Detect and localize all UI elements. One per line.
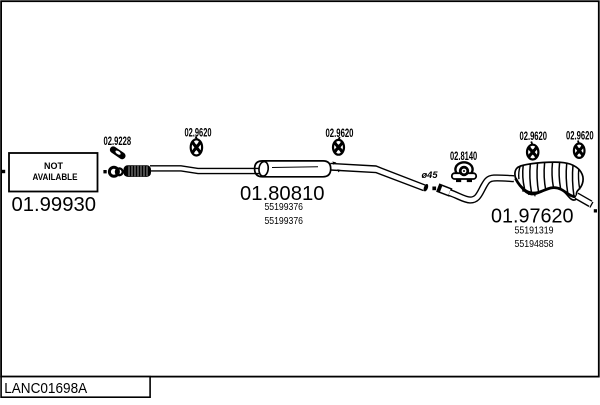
svg-text:01.97620: 01.97620	[491, 206, 574, 228]
svg-text:02.9620: 02.9620	[185, 128, 212, 140]
svg-text:ø45: ø45	[422, 170, 439, 181]
svg-text:55194858: 55194858	[515, 239, 554, 250]
svg-text:02.9620: 02.9620	[520, 131, 548, 143]
svg-text:LANC01698A: LANC01698A	[4, 381, 87, 397]
svg-text:NOT: NOT	[44, 161, 63, 172]
svg-text:55199376: 55199376	[265, 216, 304, 227]
svg-text:55191319: 55191319	[515, 226, 554, 237]
svg-text:02.9620: 02.9620	[566, 131, 594, 143]
svg-text:01.99930: 01.99930	[12, 194, 97, 216]
svg-text:55199376: 55199376	[265, 202, 304, 213]
svg-text:AVAILABLE: AVAILABLE	[33, 172, 78, 183]
svg-text:02.9228: 02.9228	[104, 136, 132, 148]
